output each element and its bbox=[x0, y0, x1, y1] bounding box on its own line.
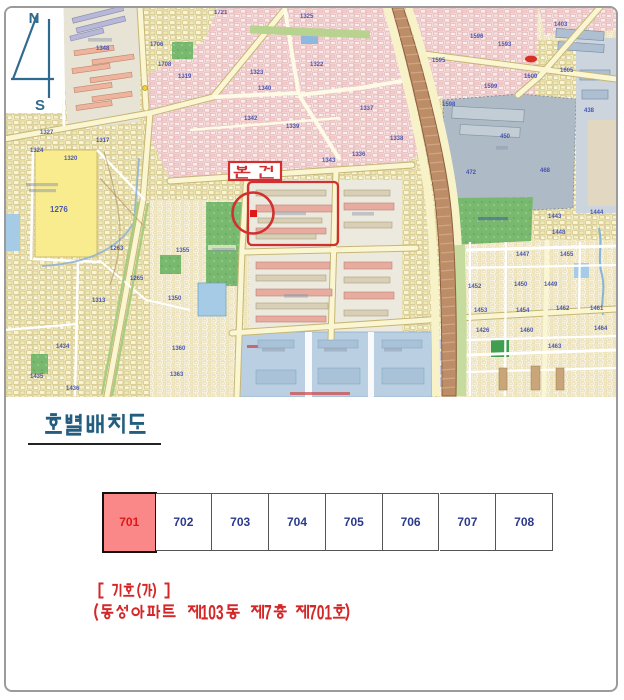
svg-text:1434: 1434 bbox=[56, 344, 70, 350]
svg-text:1327: 1327 bbox=[40, 130, 54, 136]
svg-text:1426: 1426 bbox=[476, 328, 490, 334]
svg-text:1403: 1403 bbox=[554, 22, 568, 28]
svg-text:1337: 1337 bbox=[360, 106, 374, 112]
svg-text:1449: 1449 bbox=[544, 282, 558, 288]
svg-text:1599: 1599 bbox=[484, 84, 498, 90]
svg-text:1263: 1263 bbox=[110, 246, 124, 252]
svg-text:438: 438 bbox=[584, 108, 595, 114]
svg-text:1325: 1325 bbox=[300, 14, 314, 20]
svg-text:1336: 1336 bbox=[352, 152, 366, 158]
svg-text:1348: 1348 bbox=[96, 46, 110, 52]
svg-text:1342: 1342 bbox=[244, 116, 258, 122]
svg-text:701: 701 bbox=[309, 601, 332, 625]
svg-text:1463: 1463 bbox=[548, 344, 562, 350]
svg-text:1265: 1265 bbox=[130, 276, 144, 282]
svg-text:1338: 1338 bbox=[390, 136, 404, 142]
svg-text:1339: 1339 bbox=[286, 124, 300, 130]
svg-text:1363: 1363 bbox=[170, 372, 184, 378]
svg-text:1721: 1721 bbox=[214, 10, 228, 16]
svg-text:1453: 1453 bbox=[474, 308, 488, 314]
svg-text:1460: 1460 bbox=[520, 328, 534, 334]
svg-text:1462: 1462 bbox=[556, 306, 570, 312]
svg-text:1323: 1323 bbox=[250, 70, 264, 76]
svg-text:1605: 1605 bbox=[560, 68, 574, 74]
svg-text:1350: 1350 bbox=[168, 296, 182, 302]
svg-text:1340: 1340 bbox=[258, 86, 272, 92]
svg-text:1706: 1706 bbox=[150, 42, 164, 48]
svg-text:1324: 1324 bbox=[30, 148, 44, 154]
svg-text:1464: 1464 bbox=[594, 326, 608, 332]
svg-text:1447: 1447 bbox=[516, 252, 530, 258]
svg-text:1455: 1455 bbox=[560, 252, 574, 258]
svg-text:1355: 1355 bbox=[176, 248, 190, 254]
svg-text:1343: 1343 bbox=[322, 158, 336, 164]
svg-text:450: 450 bbox=[500, 134, 511, 140]
svg-text:103: 103 bbox=[201, 601, 224, 625]
svg-text:1317: 1317 bbox=[96, 138, 110, 144]
svg-text:1596: 1596 bbox=[470, 34, 484, 40]
svg-text:1450: 1450 bbox=[514, 282, 528, 288]
svg-text:1313: 1313 bbox=[92, 298, 106, 304]
svg-text:1708: 1708 bbox=[158, 62, 172, 68]
svg-text:1320: 1320 bbox=[64, 156, 78, 162]
svg-text:1322: 1322 bbox=[310, 62, 324, 68]
svg-text:1595: 1595 bbox=[432, 58, 446, 64]
svg-text:1454: 1454 bbox=[516, 308, 530, 314]
svg-text:1319: 1319 bbox=[178, 74, 192, 80]
svg-text:468: 468 bbox=[540, 168, 551, 174]
svg-text:1443: 1443 bbox=[548, 214, 562, 220]
svg-text:1360: 1360 bbox=[172, 346, 186, 352]
svg-text:7: 7 bbox=[264, 601, 272, 625]
svg-text:1435: 1435 bbox=[30, 374, 44, 380]
svg-text:1276: 1276 bbox=[50, 205, 68, 214]
svg-text:472: 472 bbox=[466, 170, 477, 176]
svg-text:1593: 1593 bbox=[498, 42, 512, 48]
svg-text:1444: 1444 bbox=[590, 210, 604, 216]
svg-text:1448: 1448 bbox=[552, 230, 566, 236]
svg-text:S: S bbox=[35, 97, 45, 113]
svg-text:1436: 1436 bbox=[66, 386, 80, 392]
svg-text:1452: 1452 bbox=[468, 284, 482, 290]
svg-text:1461: 1461 bbox=[590, 306, 604, 312]
svg-text:1600: 1600 bbox=[524, 74, 538, 80]
svg-text:1598: 1598 bbox=[442, 102, 456, 108]
